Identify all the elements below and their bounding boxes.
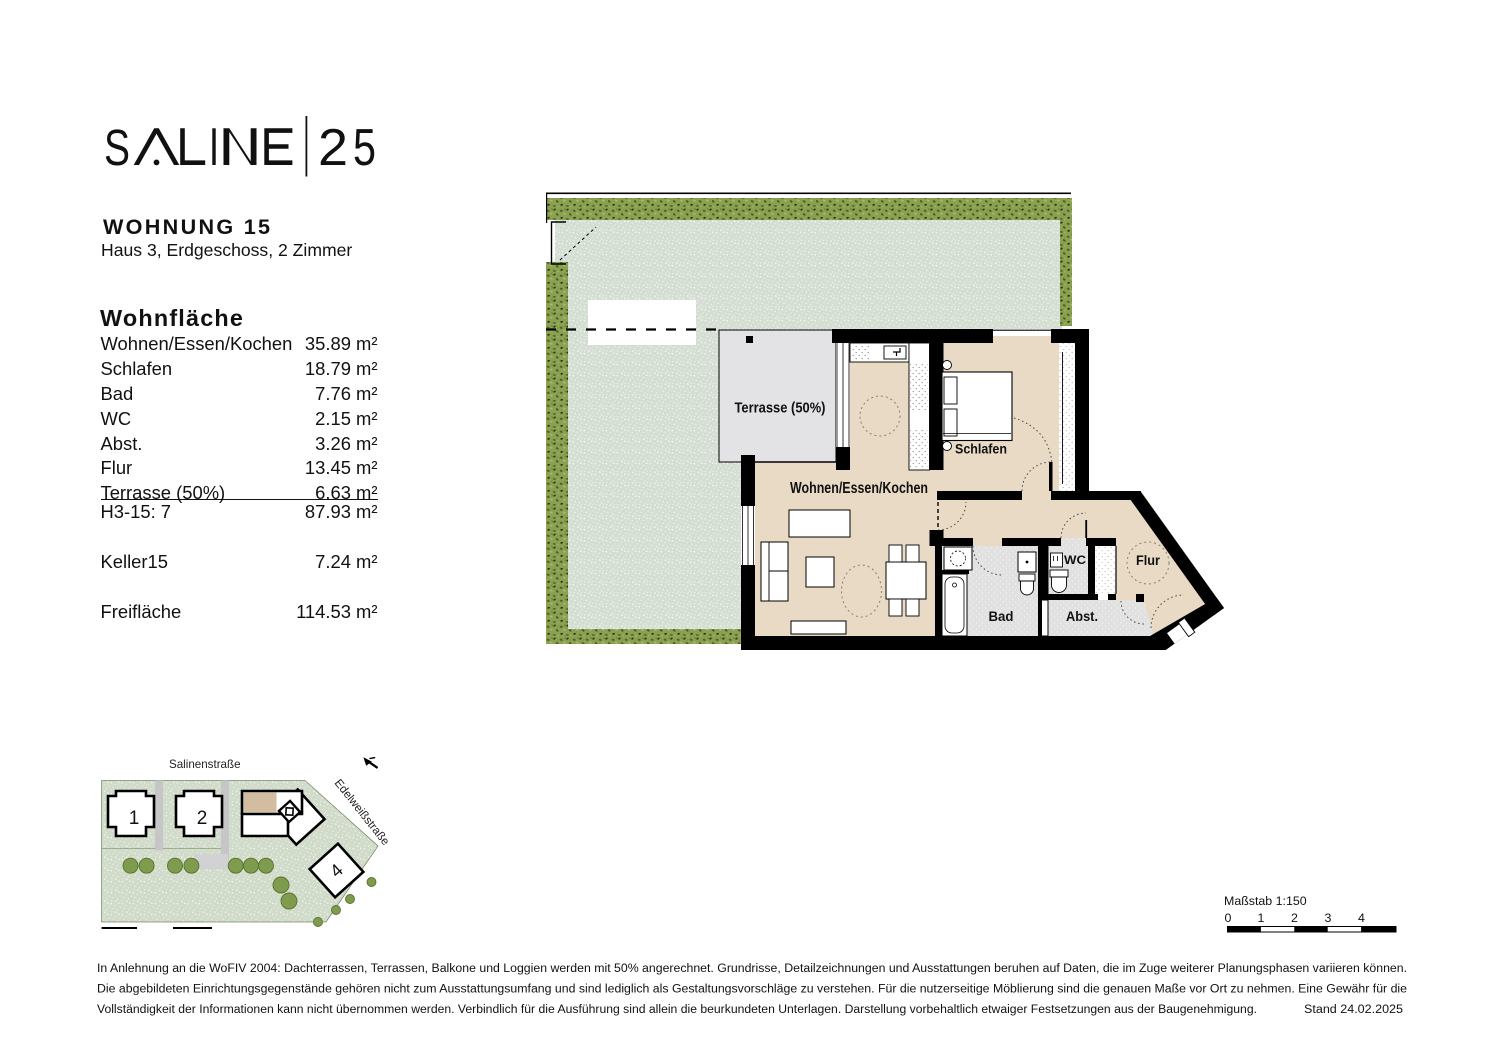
svg-text:Salinenstraße: Salinenstraße bbox=[169, 758, 241, 771]
svg-text:Wohnen/Essen/Kochen: Wohnen/Essen/Kochen bbox=[790, 480, 928, 497]
svg-text:1: 1 bbox=[129, 808, 140, 829]
svg-text:WC: WC bbox=[1064, 553, 1086, 567]
svg-text:Bad: Bad bbox=[989, 609, 1014, 624]
svg-text:Abst.: Abst. bbox=[1066, 609, 1098, 624]
svg-text:Maßstab 1:150: Maßstab 1:150 bbox=[1224, 894, 1307, 908]
svg-text:In Anlehnung an die WoFIV 2004: In Anlehnung an die WoFIV 2004: Dachterr… bbox=[97, 963, 1407, 975]
svg-text:4: 4 bbox=[1358, 911, 1365, 925]
svg-text:Stand 24.02.2025: Stand 24.02.2025 bbox=[1304, 1004, 1403, 1016]
svg-text:0: 0 bbox=[1225, 911, 1232, 925]
svg-text:2: 2 bbox=[197, 808, 208, 829]
svg-text:2: 2 bbox=[1291, 911, 1298, 925]
svg-text:3: 3 bbox=[1325, 911, 1332, 925]
svg-text:Flur: Flur bbox=[1136, 553, 1161, 568]
svg-text:Schlafen: Schlafen bbox=[955, 442, 1007, 457]
svg-text:Die abgebildeten Einrichtungsg: Die abgebildeten Einrichtungsgegenstände… bbox=[97, 983, 1407, 995]
svg-text:Vollständigkeit der Informatio: Vollständigkeit der Informationen kann n… bbox=[97, 1004, 1257, 1016]
svg-text:Terrasse (50%): Terrasse (50%) bbox=[735, 401, 826, 417]
svg-text:1: 1 bbox=[1258, 911, 1265, 925]
